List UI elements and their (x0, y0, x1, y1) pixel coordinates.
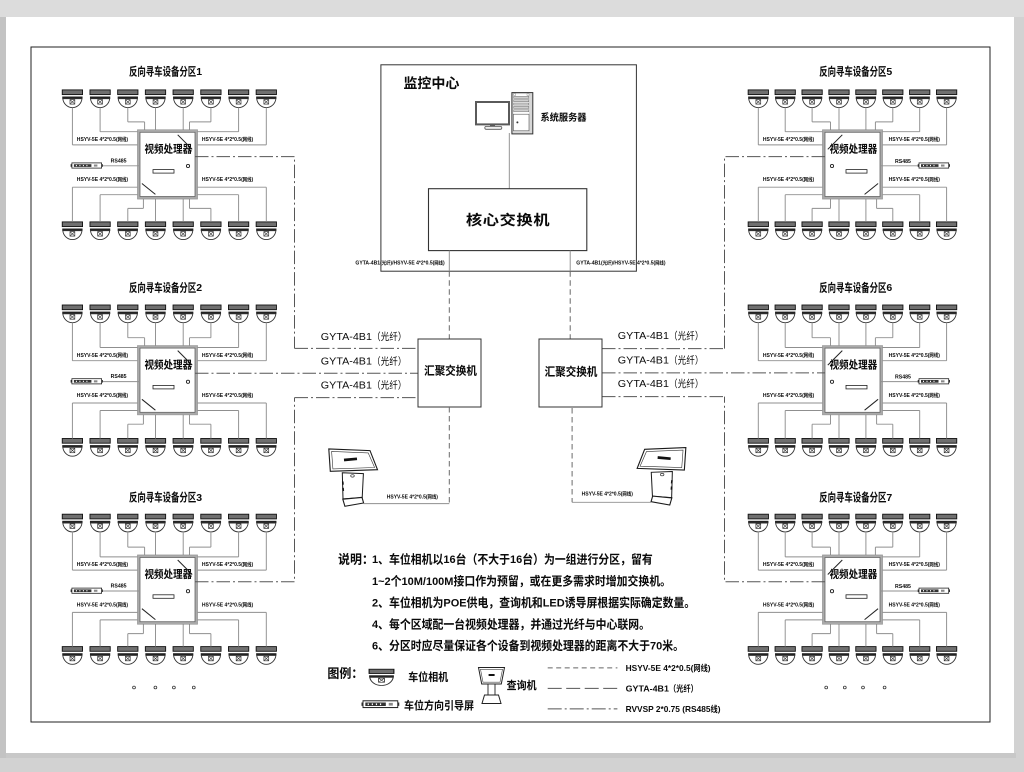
svg-text:2: 2 (196, 282, 202, 294)
svg-text:GYTA-4B1(: GYTA-4B1( (576, 261, 603, 267)
svg-text:POE: POE (443, 597, 466, 609)
svg-text:1: 1 (196, 66, 202, 78)
svg-text:)/HSYV-5E 4*2*0.5(: )/HSYV-5E 4*2*0.5( (611, 261, 655, 267)
svg-text:GYTA-4B1: GYTA-4B1 (626, 683, 670, 693)
svg-text:70: 70 (650, 640, 662, 652)
svg-text:6: 6 (886, 282, 892, 294)
svg-text:): ) (708, 663, 711, 673)
svg-text:1~2: 1~2 (372, 576, 391, 588)
svg-text:7: 7 (886, 492, 892, 504)
svg-text:4: 4 (372, 619, 379, 631)
svg-text:6: 6 (372, 640, 378, 652)
svg-text:): ) (718, 704, 721, 714)
svg-text:5: 5 (886, 66, 892, 78)
svg-text:)/HSYV-5E 4*2*0.5(: )/HSYV-5E 4*2*0.5( (390, 261, 434, 267)
svg-text:LED: LED (543, 597, 565, 609)
svg-text:16: 16 (443, 554, 455, 566)
svg-text:16: 16 (510, 554, 522, 566)
svg-text:3: 3 (196, 492, 202, 504)
svg-text:1: 1 (372, 554, 378, 566)
svg-text:GYTA-4B1(: GYTA-4B1( (355, 261, 382, 267)
svg-text:2: 2 (372, 597, 378, 609)
svg-text:10M/100M: 10M/100M (402, 576, 454, 588)
svg-text:HSYV-5E 4*2*0.5(: HSYV-5E 4*2*0.5( (626, 663, 694, 673)
svg-text:RVVSP 2*0.75 (RS485: RVVSP 2*0.75 (RS485 (626, 704, 711, 714)
